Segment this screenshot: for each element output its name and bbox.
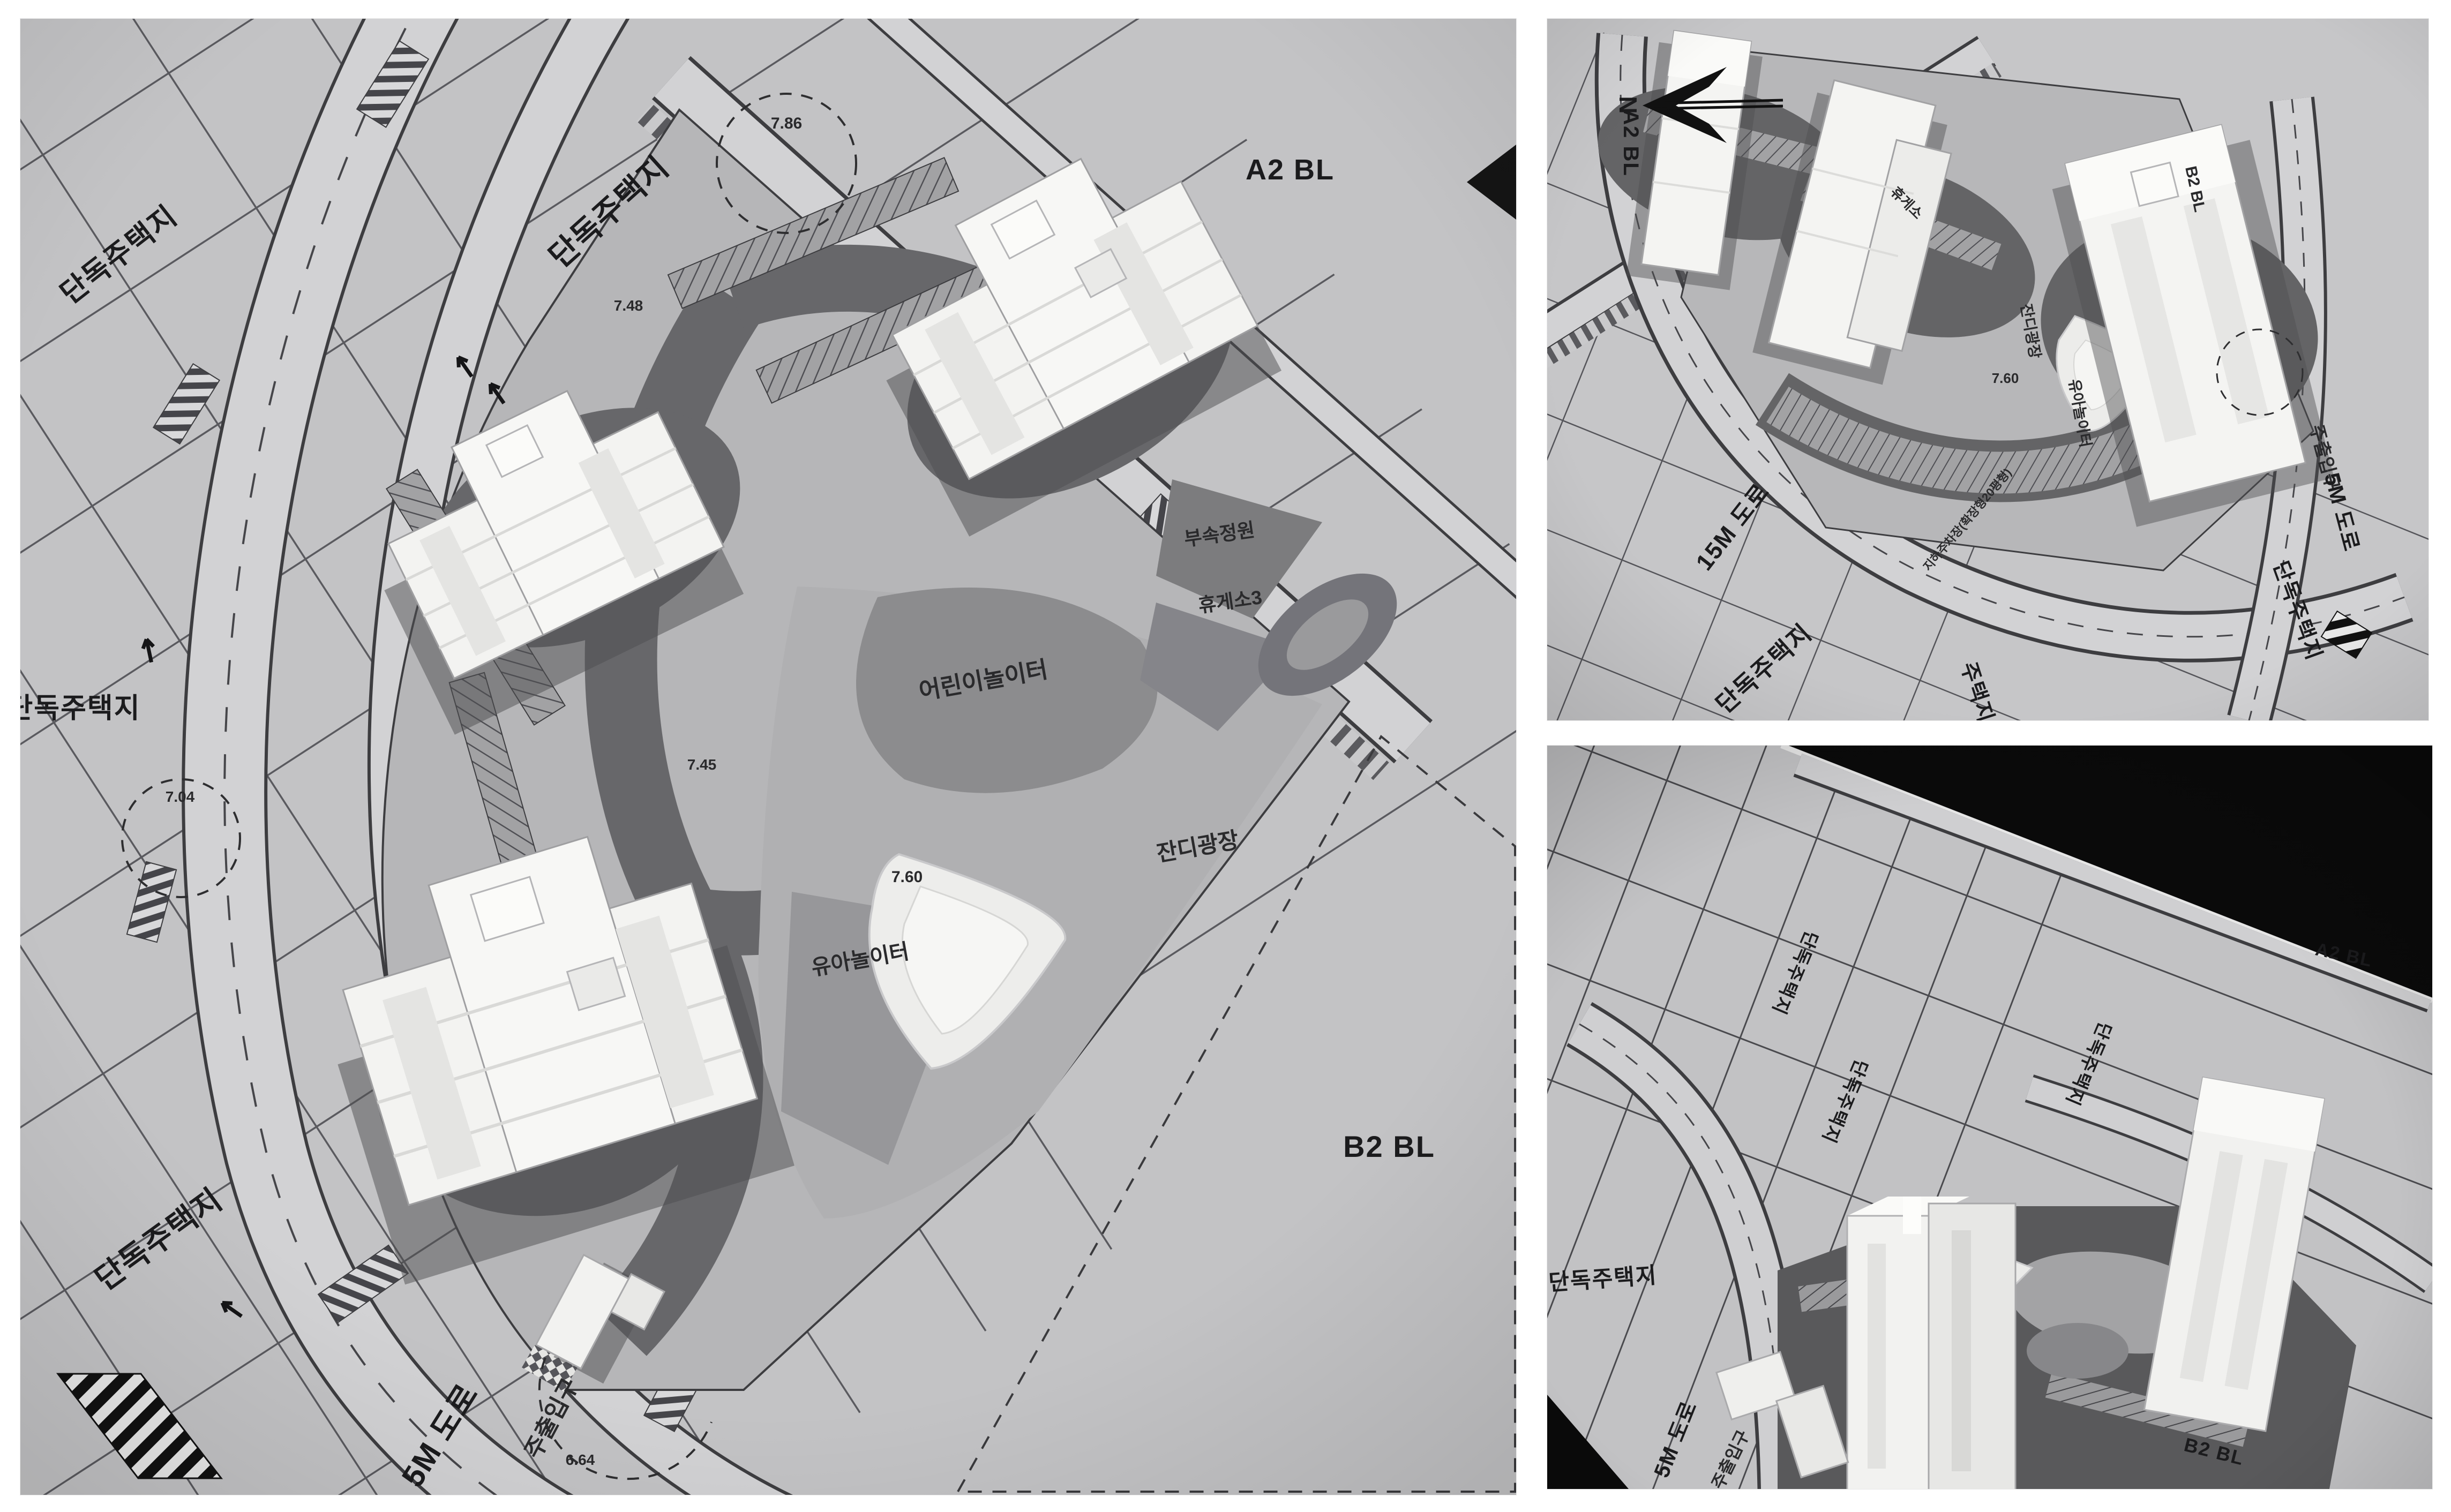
photo-top-right-image: N A2 BL B2 BL 15M 도로 단독주택지 단독주택지 주택지 주출입…: [1547, 19, 2428, 720]
photo-collage: 단독주택지 단독주택지 단독주택지 단독주택지 A2 BL B2 BL 어린이놀…: [0, 0, 2451, 1512]
photo-main: 단독주택지 단독주택지 단독주택지 단독주택지 A2 BL B2 BL 어린이놀…: [20, 19, 1516, 1495]
photo-main-image: 단독주택지 단독주택지 단독주택지 단독주택지 A2 BL B2 BL 어린이놀…: [20, 19, 1516, 1495]
photo-vignette: [20, 19, 1516, 1495]
photo-bottom-right: 단독주택지 단독주택지 단독주택지 단독주택지 A2 BL B2 BL 5M 도…: [1547, 746, 2432, 1489]
photo-top-right: N A2 BL B2 BL 15M 도로 단독주택지 단독주택지 주택지 주출입…: [1547, 19, 2428, 720]
photo-vignette: [1547, 746, 2432, 1489]
photo-bottom-right-image: 단독주택지 단독주택지 단독주택지 단독주택지 A2 BL B2 BL 5M 도…: [1547, 746, 2432, 1489]
photo-vignette: [1547, 19, 2428, 720]
